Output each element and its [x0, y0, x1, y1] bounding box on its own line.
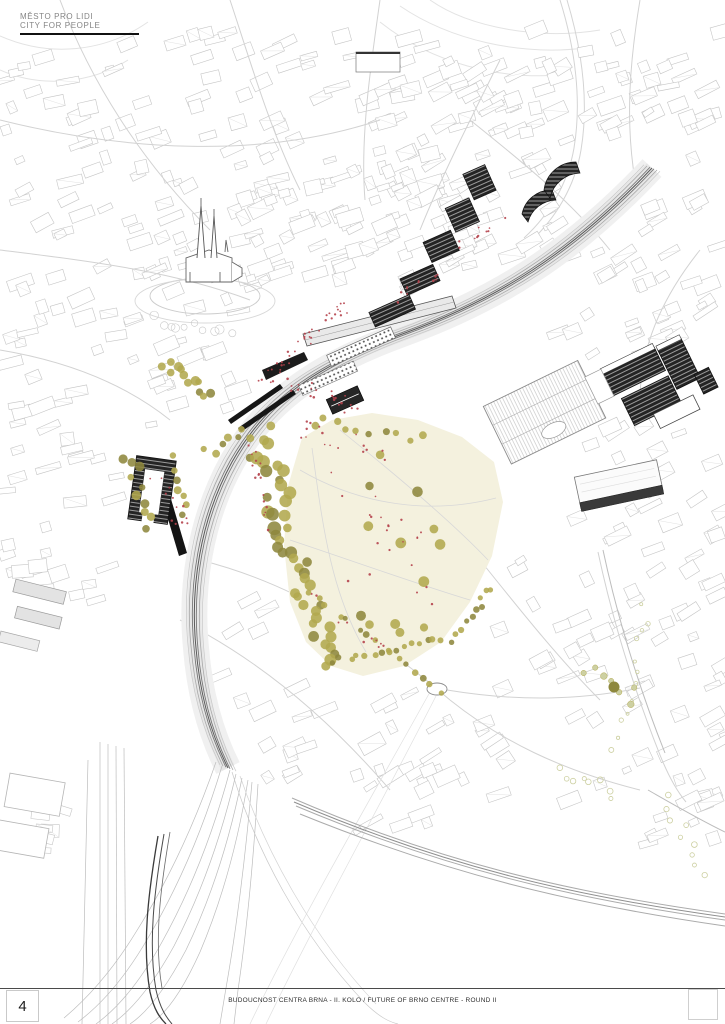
feature-tree [609, 682, 620, 693]
highway [292, 790, 725, 926]
footer-caption: BUDOUCNOST CENTRA BRNA - II. KOLO / FUTU… [0, 997, 725, 1004]
board-title-english: CITY FOR PEOPLE [20, 21, 139, 30]
axonometric-city-drawing [0, 0, 725, 1024]
industrial-halls [483, 353, 621, 464]
stamp-box [688, 989, 718, 1020]
grey-slab-buildings [0, 579, 68, 656]
market-hall [326, 386, 364, 414]
dark-roof-building [356, 52, 400, 72]
competition-board: MĚSTO PRO LIDI CITY FOR PEOPLE [0, 0, 725, 1024]
footer-rule [0, 988, 725, 989]
board-header: MĚSTO PRO LIDI CITY FOR PEOPLE [20, 12, 139, 35]
page-number-box: 4 [6, 990, 39, 1022]
header-underline [20, 33, 139, 35]
board-title-czech: MĚSTO PRO LIDI [20, 12, 139, 21]
